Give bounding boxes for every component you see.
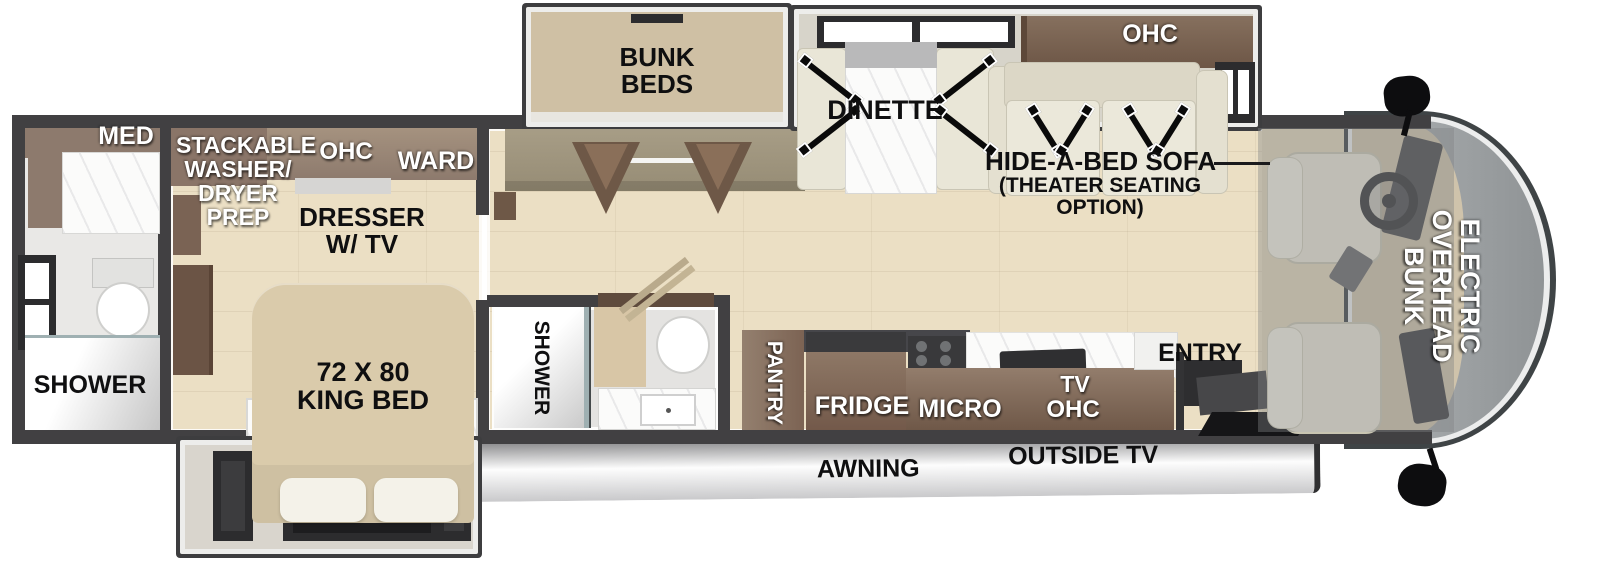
- micro-label: MICRO: [910, 396, 1010, 422]
- bed-pillow-left: [280, 478, 366, 522]
- kitchen-ohc-label: OHC: [1033, 398, 1113, 423]
- king-bed-label: 72 X 80 KING BED: [276, 358, 450, 414]
- dinette-table-edge: [845, 42, 937, 68]
- mid-bath-shelf: [598, 293, 714, 307]
- cooktop: [908, 336, 966, 370]
- entry-label: ENTRY: [1140, 340, 1260, 366]
- rear-bath-cabinet-left: [28, 152, 62, 228]
- rear-bath-vanity: [62, 152, 160, 234]
- hall-cabinet-end: [494, 192, 516, 220]
- sofa-label: HIDE-A-BED SOFA (THEATER SEATING OPTION): [985, 148, 1215, 219]
- pantry-label: PANTRY: [763, 338, 785, 428]
- med-label: MED: [86, 123, 166, 149]
- bed-pillow-right: [374, 478, 458, 522]
- outside-tv-label: OUTSIDE TV: [998, 442, 1168, 470]
- fridge-label: FRIDGE: [812, 393, 912, 419]
- mid-bath-right-wall: [718, 295, 730, 444]
- tv-label: TV: [1035, 373, 1115, 397]
- dresser-counter: [295, 178, 391, 194]
- mid-bath-cabinet: [594, 307, 646, 387]
- rear-bath-toilet-bowl: [96, 282, 150, 338]
- bedroom-ohc-label: OHC: [306, 140, 386, 165]
- sofa-ohc-label: OHC: [1100, 21, 1200, 47]
- bar-stool-left: [572, 142, 640, 214]
- bunk-floor-strip: [531, 112, 783, 122]
- king-slide-window-left: [213, 451, 253, 541]
- rv-floor-plan: AWNING OUTSIDE TV MED SHOWER: [0, 0, 1600, 567]
- bunk-beds-label: BUNK BEDS: [577, 44, 737, 98]
- mid-toilet-bowl: [656, 316, 710, 374]
- bedroom-wardrobe: [173, 265, 213, 375]
- fridge-top: [806, 332, 906, 354]
- mid-bath-sink-drain: [666, 408, 671, 413]
- sofa-pointer-line: [1214, 162, 1270, 165]
- bar-stool-right: [684, 142, 752, 214]
- dresser-label: DRESSER W/ TV: [282, 204, 442, 258]
- rear-shower-label: SHOWER: [30, 372, 150, 398]
- dinette-label: DINETTE: [805, 96, 965, 124]
- awning-strip: AWNING OUTSIDE TV: [468, 435, 1321, 502]
- ward-label: WARD: [394, 148, 478, 174]
- bunk-handle: [631, 14, 683, 23]
- mirror-bottom-icon: [1395, 461, 1448, 509]
- mid-shower-glass: [584, 307, 591, 428]
- overhead-bunk-label: ELECTRIC OVERHEAD BUNK: [1400, 186, 1484, 386]
- awning-label: AWNING: [788, 455, 948, 483]
- mid-shower-label: SHOWER: [530, 313, 552, 423]
